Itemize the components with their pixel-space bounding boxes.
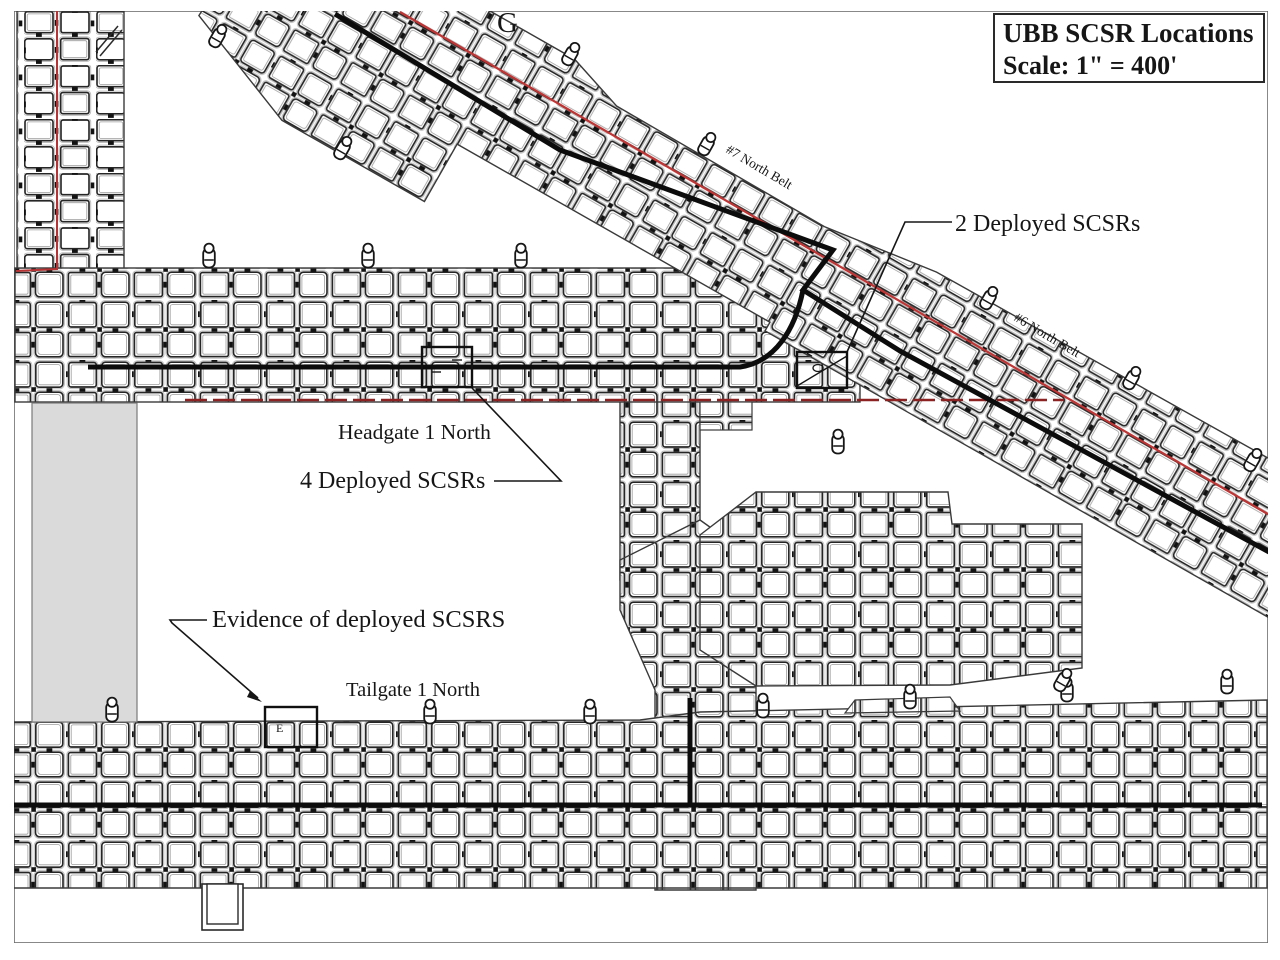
svg-text:2 Deployed SCSRs: 2 Deployed SCSRs (955, 211, 1140, 237)
svg-text:UBB SCSR Locations: UBB SCSR Locations (1003, 18, 1254, 48)
svg-text:Tailgate 1 North: Tailgate 1 North (346, 679, 480, 701)
svg-text:Scale: 1" = 400': Scale: 1" = 400' (1003, 51, 1177, 80)
svg-text:Evidence of deployed SCSRS: Evidence of deployed SCSRS (212, 606, 505, 633)
svg-text:4 Deployed SCSRs: 4 Deployed SCSRs (300, 468, 485, 494)
svg-text:E: E (276, 721, 283, 735)
svg-text:G: G (497, 7, 518, 39)
svg-text:Headgate 1 North: Headgate 1 North (338, 420, 491, 444)
